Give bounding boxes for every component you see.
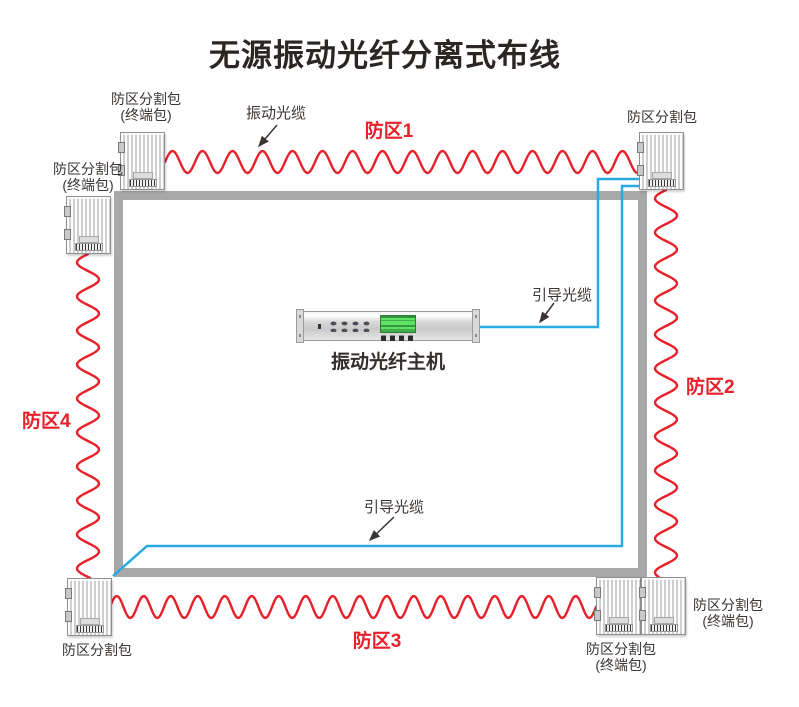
zone-label-2: 防区2	[686, 372, 735, 399]
box-barcode	[648, 179, 676, 187]
label-line: (终端包)	[120, 107, 171, 123]
zone-label-1: 防区1	[354, 116, 424, 143]
rack-ear	[472, 309, 480, 343]
label-line: 防区分割包	[693, 597, 763, 613]
status-led-grid	[328, 320, 370, 332]
box-tag	[652, 172, 672, 179]
splitter-box-bottom-left	[67, 578, 112, 636]
panel-button	[399, 335, 404, 341]
splitter-box-left	[66, 196, 111, 254]
label-splitter-bottom-left: 防区分割包	[37, 642, 157, 658]
hinge-icon	[64, 229, 71, 240]
label-line: 防区分割包	[53, 161, 123, 177]
vibration-cable-zone1	[165, 147, 639, 177]
box-barcode	[605, 624, 633, 632]
hinge-icon	[65, 588, 72, 599]
zone-label-3: 防区3	[342, 626, 412, 653]
lcd-screen	[380, 315, 416, 333]
hinge-icon	[639, 587, 646, 598]
host-device-label: 振动光纤主机	[296, 347, 480, 374]
hinge-icon	[637, 142, 644, 153]
splitter-box-bottom-right-inner	[596, 577, 641, 635]
label-line: 防区分割包	[627, 109, 697, 125]
hinge-icon	[637, 165, 644, 176]
box-tag	[79, 236, 99, 243]
label-line: (终端包)	[595, 657, 646, 673]
vibration-cable-zone3	[110, 592, 597, 622]
label-line: 防区分割包	[586, 641, 656, 657]
diagram-canvas: 无源振动光纤分离式布线	[0, 0, 799, 707]
perimeter-wall	[114, 191, 647, 577]
hinge-icon	[64, 206, 71, 217]
box-tag	[80, 618, 100, 625]
power-led	[318, 324, 321, 329]
panel-button	[390, 335, 395, 341]
box-tag	[654, 617, 674, 624]
label-line: 防区分割包	[62, 642, 132, 658]
label-splitter-bottom-right-inner: 防区分割包 (终端包)	[561, 641, 681, 673]
label-line: 防区分割包	[111, 91, 181, 107]
hinge-icon	[594, 610, 601, 621]
zone-label-4: 防区4	[22, 406, 71, 433]
annotation-guide-cable-bottom: 引导光缆	[364, 496, 424, 517]
box-tag	[609, 617, 629, 624]
label-splitter-top-right: 防区分割包	[602, 109, 722, 125]
splitter-box-top-right	[639, 132, 684, 190]
annotation-guide-cable-top: 引导光缆	[532, 284, 592, 305]
hinge-icon	[594, 587, 601, 598]
box-barcode	[650, 624, 678, 632]
vibration-cable-zone4	[73, 254, 103, 578]
annotation-vibration-cable: 振动光缆	[246, 102, 306, 123]
box-barcode	[76, 625, 104, 633]
label-line: (终端包)	[62, 177, 113, 193]
hinge-icon	[639, 610, 646, 621]
diagram-title: 无源振动光纤分离式布线	[0, 30, 770, 75]
hinge-icon	[65, 611, 72, 622]
host-front-panel	[303, 311, 473, 341]
arrow-vibration-cable	[259, 125, 277, 146]
label-splitter-left: 防区分割包 (终端包)	[28, 161, 148, 193]
label-splitter-bottom-right-outer: 防区分割包 (终端包)	[688, 597, 768, 629]
splitter-box-bottom-right-outer	[641, 577, 686, 635]
label-line: (终端包)	[702, 613, 753, 629]
vibration-fiber-host-device	[296, 309, 480, 343]
box-barcode	[75, 243, 103, 251]
label-splitter-top-left: 防区分割包 (终端包)	[86, 91, 206, 123]
hinge-icon	[118, 142, 125, 153]
panel-button	[381, 335, 386, 341]
panel-button	[408, 335, 413, 341]
vibration-cable-zone2	[651, 190, 681, 578]
